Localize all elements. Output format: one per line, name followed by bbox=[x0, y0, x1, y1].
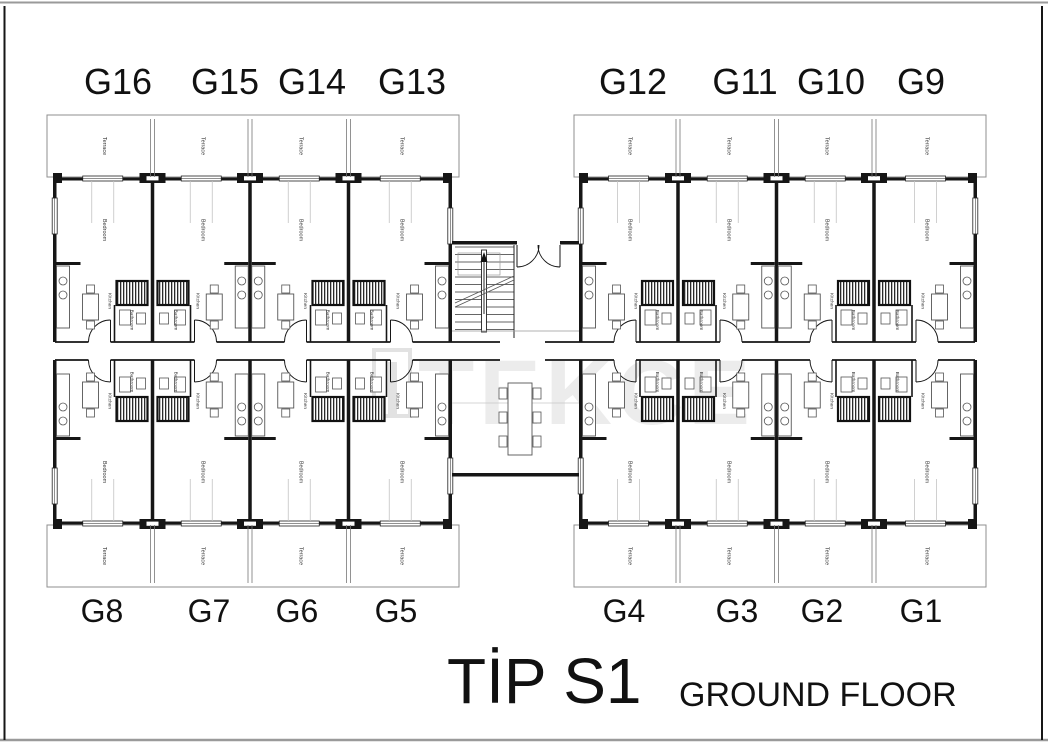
bathroom-label: Bathroom bbox=[369, 310, 375, 331]
unit-g13: TerraceBedroomG13 bbox=[378, 61, 446, 242]
unit-label-g7: G7 bbox=[188, 593, 231, 629]
bathroom-label: Bathroom bbox=[173, 310, 179, 331]
unit-label-g8: G8 bbox=[81, 593, 124, 629]
wall-corner-column bbox=[579, 173, 588, 183]
chair bbox=[936, 409, 944, 417]
kitchen-counter bbox=[961, 266, 974, 328]
bedroom-label: Bedroom bbox=[924, 219, 930, 242]
chair bbox=[499, 388, 507, 399]
unit-divider-wall bbox=[347, 360, 351, 522]
units-top-left: TerraceBedroomG16TerraceBedroomG15Terrac… bbox=[47, 61, 459, 342]
unit-g5: TerraceBedroomG5 bbox=[375, 461, 421, 629]
kitchen-table bbox=[733, 382, 749, 408]
chair bbox=[210, 409, 218, 417]
bathroom-label: Bathroom bbox=[129, 310, 135, 331]
chair bbox=[533, 412, 541, 423]
chair bbox=[613, 285, 621, 293]
unit-label-g15: G15 bbox=[191, 61, 259, 102]
chair bbox=[613, 409, 621, 417]
column-window-slot bbox=[343, 522, 355, 526]
unit-label-g14: G14 bbox=[278, 61, 346, 102]
column-window-slot bbox=[244, 522, 256, 526]
bathroom-label: Bathroom bbox=[129, 372, 135, 393]
unit-g9: TerraceBedroomG9 bbox=[897, 61, 946, 242]
kitchen-wall-stub bbox=[751, 262, 775, 265]
chair bbox=[411, 373, 419, 381]
bedroom-label: Bedroom bbox=[398, 461, 404, 484]
kitchen-label: Kitchen bbox=[107, 293, 113, 309]
kitchen-label: Kitchen bbox=[302, 393, 308, 409]
kitchen-wall-stub bbox=[425, 262, 449, 265]
chair bbox=[411, 409, 419, 417]
chair bbox=[282, 285, 290, 293]
kitchen: Kitchen bbox=[194, 373, 248, 440]
kitchen-wall-stub bbox=[224, 262, 248, 265]
unit-divider-wall bbox=[872, 181, 876, 343]
sink bbox=[356, 313, 365, 324]
wall-corner-column bbox=[579, 519, 588, 529]
bedroom-label: Bedroom bbox=[398, 219, 404, 242]
sink bbox=[685, 378, 694, 389]
sink bbox=[160, 313, 169, 324]
kitchen-label: Kitchen bbox=[194, 293, 200, 309]
door-arc bbox=[517, 245, 539, 267]
side-wall bbox=[449, 360, 453, 525]
kitchen-label: Kitchen bbox=[721, 293, 727, 309]
sink bbox=[858, 313, 867, 324]
kitchen-wall-stub bbox=[425, 437, 449, 440]
shower-hatch bbox=[313, 397, 344, 421]
kitchen-counter bbox=[252, 266, 265, 328]
bedroom-label: Bedroom bbox=[627, 461, 633, 484]
chair bbox=[808, 373, 816, 381]
unit-divider-wall bbox=[347, 181, 351, 343]
terrace-band bbox=[47, 115, 459, 177]
bathroom-label: Bathroom bbox=[325, 310, 331, 331]
kitchen: Kitchen bbox=[57, 262, 113, 329]
terrace-label: Terrace bbox=[924, 137, 930, 155]
bedroom-label: Bedroom bbox=[627, 219, 633, 242]
kitchen-wall-stub bbox=[583, 262, 607, 265]
kitchen-label: Kitchen bbox=[920, 293, 926, 309]
shower-hatch bbox=[642, 281, 673, 305]
sink bbox=[137, 313, 146, 324]
kitchen-counter bbox=[762, 374, 775, 436]
terrace-label: Terrace bbox=[297, 137, 303, 155]
terrace-label: Terrace bbox=[823, 547, 829, 565]
unit-g15: TerraceBedroomG15 bbox=[181, 61, 259, 242]
bathroom-label: Bathroom bbox=[654, 310, 660, 331]
column-window-slot bbox=[672, 522, 684, 526]
hall-wall bbox=[452, 473, 579, 477]
bedroom-label: Bedroom bbox=[101, 219, 107, 242]
shower-hatch bbox=[838, 281, 869, 305]
terrace-label: Terrace bbox=[823, 137, 829, 155]
door-arc bbox=[538, 245, 560, 267]
terrace-label: Terrace bbox=[199, 137, 205, 155]
chair bbox=[282, 373, 290, 381]
entry-door-arc bbox=[916, 320, 938, 342]
kitchen-counter bbox=[961, 374, 974, 436]
shower-hatch bbox=[879, 281, 910, 305]
unit-divider-wall bbox=[248, 360, 252, 522]
wall-corner-column bbox=[53, 173, 62, 183]
kitchen-counter bbox=[583, 266, 596, 328]
kitchen-wall-stub bbox=[751, 437, 775, 440]
column-window-slot bbox=[343, 176, 355, 180]
bedroom-label: Bedroom bbox=[297, 461, 303, 484]
unit-label-g11: G11 bbox=[712, 61, 777, 102]
floor-plan-drawing: TEKCE TerraceBedroomG16TerraceBedroomG15… bbox=[0, 0, 1048, 750]
unit-g12: TerraceBedroomG12 bbox=[599, 61, 667, 242]
kitchen-table bbox=[407, 382, 423, 408]
side-wall bbox=[579, 177, 583, 342]
bathroom-label: Bathroom bbox=[850, 372, 856, 393]
chair bbox=[936, 321, 944, 329]
sink bbox=[685, 313, 694, 324]
unit-divider-wall bbox=[248, 181, 252, 343]
sink bbox=[333, 378, 342, 389]
kitchen-label: Kitchen bbox=[633, 393, 639, 409]
chair bbox=[533, 436, 541, 447]
kitchen-label: Kitchen bbox=[828, 393, 834, 409]
units-top-right: TerraceBedroomG12TerraceBedroomG11Terrac… bbox=[574, 61, 986, 342]
terrace-band bbox=[47, 525, 459, 587]
kitchen: Kitchen bbox=[721, 262, 775, 329]
chair bbox=[499, 412, 507, 423]
terrace-label: Terrace bbox=[101, 547, 107, 565]
terrace-label: Terrace bbox=[101, 137, 107, 155]
kitchen-wall-stub bbox=[252, 437, 276, 440]
chair bbox=[282, 321, 290, 329]
column-window-slot bbox=[244, 176, 256, 180]
chair bbox=[936, 285, 944, 293]
sink bbox=[881, 313, 890, 324]
unit-divider-wall bbox=[775, 181, 779, 343]
shower-hatch bbox=[683, 281, 714, 305]
watermark: TEKCE bbox=[374, 342, 755, 444]
chair bbox=[87, 321, 95, 329]
sink bbox=[333, 313, 342, 324]
shower-hatch bbox=[838, 397, 869, 421]
units-bottom-right: TerraceBedroomG4TerraceBedroomG3TerraceB… bbox=[574, 360, 986, 629]
unit-label-g9: G9 bbox=[897, 61, 945, 102]
unit-g7: TerraceBedroomG7 bbox=[181, 461, 230, 629]
side-wall bbox=[579, 360, 583, 525]
chair bbox=[210, 321, 218, 329]
wing: TerraceBedroomG16TerraceBedroomG15Terrac… bbox=[47, 61, 459, 629]
kitchen: Kitchen bbox=[920, 262, 974, 329]
unit-label-g10: G10 bbox=[797, 61, 865, 102]
plan-type-title: TİP S1 bbox=[447, 645, 641, 717]
unit-g2: TerraceBedroomG2 bbox=[801, 461, 846, 629]
kitchen-wall-stub bbox=[57, 437, 81, 440]
terrace-label: Terrace bbox=[398, 137, 404, 155]
kitchen-table bbox=[83, 294, 99, 320]
shower-hatch bbox=[158, 397, 189, 421]
kitchen-wall-stub bbox=[778, 437, 802, 440]
sink bbox=[160, 378, 169, 389]
kitchen-wall-stub bbox=[224, 437, 248, 440]
unit-label-g6: G6 bbox=[276, 593, 319, 629]
unit-g4: TerraceBedroomG4 bbox=[603, 461, 649, 629]
unit-divider-wall bbox=[775, 360, 779, 522]
shower-hatch bbox=[642, 397, 673, 421]
bathroom-label: Bathroom bbox=[369, 372, 375, 393]
bedroom-label: Bedroom bbox=[823, 461, 829, 484]
kitchen-label: Kitchen bbox=[395, 393, 401, 409]
bedroom-label: Bedroom bbox=[725, 219, 731, 242]
kitchen: Kitchen bbox=[583, 262, 639, 329]
unit-g8: TerraceBedroomG8 bbox=[81, 461, 124, 629]
bathroom-label: Bathroom bbox=[173, 372, 179, 393]
kitchen-counter bbox=[778, 266, 791, 328]
kitchen-wall-stub bbox=[252, 262, 276, 265]
shower-hatch bbox=[158, 281, 189, 305]
unit-label-g13: G13 bbox=[378, 61, 446, 102]
unit-divider-wall bbox=[676, 360, 680, 522]
column-window-slot bbox=[771, 176, 783, 180]
chair bbox=[282, 409, 290, 417]
shower-hatch bbox=[117, 397, 148, 421]
entry-door-arc bbox=[916, 360, 938, 382]
unit-g16: TerraceBedroomG16 bbox=[83, 61, 152, 242]
chair bbox=[613, 373, 621, 381]
bedroom-label: Bedroom bbox=[725, 461, 731, 484]
unit-divider-wall bbox=[872, 360, 876, 522]
kitchen-label: Kitchen bbox=[920, 393, 926, 409]
unit-g3: TerraceBedroomG3 bbox=[707, 461, 758, 629]
kitchen-table bbox=[932, 294, 948, 320]
kitchen-table bbox=[609, 382, 625, 408]
unit-g6: TerraceBedroomG6 bbox=[276, 461, 320, 629]
dining-table bbox=[508, 383, 532, 455]
kitchen-counter bbox=[252, 374, 265, 436]
kitchen: Kitchen bbox=[778, 373, 834, 440]
staircase bbox=[455, 245, 514, 338]
kitchen-table bbox=[206, 294, 222, 320]
shower-hatch bbox=[313, 281, 344, 305]
terrace-label: Terrace bbox=[627, 137, 633, 155]
dining-area bbox=[499, 383, 541, 455]
kitchen-counter bbox=[778, 374, 791, 436]
bedroom-label: Bedroom bbox=[199, 219, 205, 242]
column-window-slot bbox=[771, 522, 783, 526]
unit-label-g1: G1 bbox=[900, 593, 943, 629]
chair bbox=[210, 373, 218, 381]
kitchen-label: Kitchen bbox=[302, 293, 308, 309]
unit-divider-wall bbox=[151, 360, 155, 522]
column-window-slot bbox=[147, 522, 159, 526]
shower-hatch bbox=[354, 281, 385, 305]
kitchen-label: Kitchen bbox=[107, 393, 113, 409]
entrance-doors bbox=[517, 245, 560, 267]
unit-label-g2: G2 bbox=[801, 593, 844, 629]
chair bbox=[737, 285, 745, 293]
kitchen-table bbox=[932, 382, 948, 408]
kitchen-table bbox=[278, 382, 294, 408]
shower-hatch bbox=[879, 397, 910, 421]
kitchen: Kitchen bbox=[194, 262, 248, 329]
sink bbox=[858, 378, 867, 389]
units-bottom-left: TerraceBedroomG8TerraceBedroomG7TerraceB… bbox=[47, 360, 459, 629]
bathroom-label: Bathroom bbox=[654, 372, 660, 393]
column-window-slot bbox=[147, 176, 159, 180]
kitchen-counter bbox=[57, 374, 70, 436]
kitchen: Kitchen bbox=[395, 262, 449, 329]
sink bbox=[137, 378, 146, 389]
unit-divider-wall bbox=[151, 181, 155, 343]
kitchen-table bbox=[407, 294, 423, 320]
terrace-label: Terrace bbox=[199, 547, 205, 565]
kitchen-counter bbox=[436, 374, 449, 436]
hall-wall bbox=[560, 241, 579, 245]
side-wall bbox=[449, 177, 453, 342]
chair bbox=[737, 373, 745, 381]
terrace-label: Terrace bbox=[924, 547, 930, 565]
bathroom-label: Bathroom bbox=[325, 372, 331, 393]
terrace-label: Terrace bbox=[398, 547, 404, 565]
kitchen-wall-stub bbox=[57, 262, 81, 265]
chair bbox=[210, 285, 218, 293]
kitchen-table bbox=[278, 294, 294, 320]
bathroom-label: Bathroom bbox=[698, 372, 704, 393]
column-window-slot bbox=[868, 176, 880, 180]
sink bbox=[881, 378, 890, 389]
bathroom-label: Bathroom bbox=[894, 310, 900, 331]
kitchen-counter bbox=[235, 374, 248, 436]
wall-corner-column bbox=[968, 519, 977, 529]
kitchen-counter bbox=[235, 266, 248, 328]
bathroom-label: Bathroom bbox=[894, 372, 900, 393]
hall-wall bbox=[452, 241, 517, 245]
terrace-label: Terrace bbox=[725, 137, 731, 155]
wall-corner-column bbox=[443, 519, 452, 529]
kitchen-table bbox=[609, 294, 625, 320]
floor-plan-sheet: TEKCE TerraceBedroomG16TerraceBedroomG15… bbox=[0, 0, 1048, 750]
kitchen-label: Kitchen bbox=[828, 293, 834, 309]
kitchen-table bbox=[804, 382, 820, 408]
kitchen: Kitchen bbox=[252, 373, 308, 440]
unit-label-g4: G4 bbox=[603, 593, 646, 629]
column-window-slot bbox=[672, 176, 684, 180]
kitchen-label: Kitchen bbox=[633, 293, 639, 309]
bedroom-label: Bedroom bbox=[823, 219, 829, 242]
kitchen-wall-stub bbox=[950, 262, 974, 265]
kitchen-wall-stub bbox=[583, 437, 607, 440]
unit-label-g5: G5 bbox=[375, 593, 418, 629]
unit-g10: TerraceBedroomG10 bbox=[797, 61, 865, 242]
kitchen-label: Kitchen bbox=[194, 393, 200, 409]
sink bbox=[662, 378, 671, 389]
bedroom-label: Bedroom bbox=[101, 461, 107, 484]
bedroom-label: Bedroom bbox=[297, 219, 303, 242]
kitchen: Kitchen bbox=[252, 262, 308, 329]
stair-landing bbox=[458, 253, 500, 275]
bedroom-label: Bedroom bbox=[924, 461, 930, 484]
chair bbox=[87, 285, 95, 293]
unit-g1: TerraceBedroomG1 bbox=[900, 461, 946, 629]
column-window-slot bbox=[868, 522, 880, 526]
unit-divider-wall bbox=[676, 181, 680, 343]
terrace-label: Terrace bbox=[725, 547, 731, 565]
kitchen-table bbox=[83, 382, 99, 408]
wall-corner-column bbox=[53, 519, 62, 529]
kitchen: Kitchen bbox=[778, 262, 834, 329]
chair bbox=[533, 388, 541, 399]
sink bbox=[662, 313, 671, 324]
chair bbox=[737, 321, 745, 329]
wall-corner-column bbox=[443, 173, 452, 183]
chair bbox=[87, 373, 95, 381]
chair bbox=[808, 285, 816, 293]
sink bbox=[356, 378, 365, 389]
chair bbox=[808, 409, 816, 417]
shower-hatch bbox=[683, 397, 714, 421]
kitchen-counter bbox=[583, 374, 596, 436]
kitchen-table bbox=[206, 382, 222, 408]
unit-g11: TerraceBedroomG11 bbox=[707, 61, 777, 242]
kitchen-wall-stub bbox=[778, 262, 802, 265]
chair bbox=[613, 321, 621, 329]
kitchen: Kitchen bbox=[57, 373, 113, 440]
kitchen: Kitchen bbox=[920, 373, 974, 440]
unit-label-g12: G12 bbox=[599, 61, 667, 102]
chair bbox=[808, 321, 816, 329]
bathroom-label: Bathroom bbox=[850, 310, 856, 331]
chair bbox=[936, 373, 944, 381]
chair bbox=[737, 409, 745, 417]
unit-label-g3: G3 bbox=[716, 593, 759, 629]
bedroom-label: Bedroom bbox=[199, 461, 205, 484]
shower-hatch bbox=[117, 281, 148, 305]
chair bbox=[411, 321, 419, 329]
kitchen-wall-stub bbox=[950, 437, 974, 440]
terrace-label: Terrace bbox=[297, 547, 303, 565]
kitchen-label: Kitchen bbox=[395, 293, 401, 309]
kitchen-counter bbox=[436, 266, 449, 328]
chair bbox=[499, 436, 507, 447]
kitchen-label: Kitchen bbox=[721, 393, 727, 409]
bathroom-label: Bathroom bbox=[698, 310, 704, 331]
kitchen-table bbox=[733, 294, 749, 320]
kitchen-table bbox=[804, 294, 820, 320]
terrace-label: Terrace bbox=[627, 547, 633, 565]
kitchen-counter bbox=[57, 266, 70, 328]
floor-subtitle: GROUND FLOOR bbox=[679, 676, 957, 714]
unit-label-g16: G16 bbox=[84, 61, 152, 102]
chair bbox=[411, 285, 419, 293]
chair bbox=[87, 409, 95, 417]
entry-door-arc bbox=[391, 320, 413, 342]
wall-corner-column bbox=[968, 173, 977, 183]
shower-hatch bbox=[354, 397, 385, 421]
kitchen-counter bbox=[762, 266, 775, 328]
